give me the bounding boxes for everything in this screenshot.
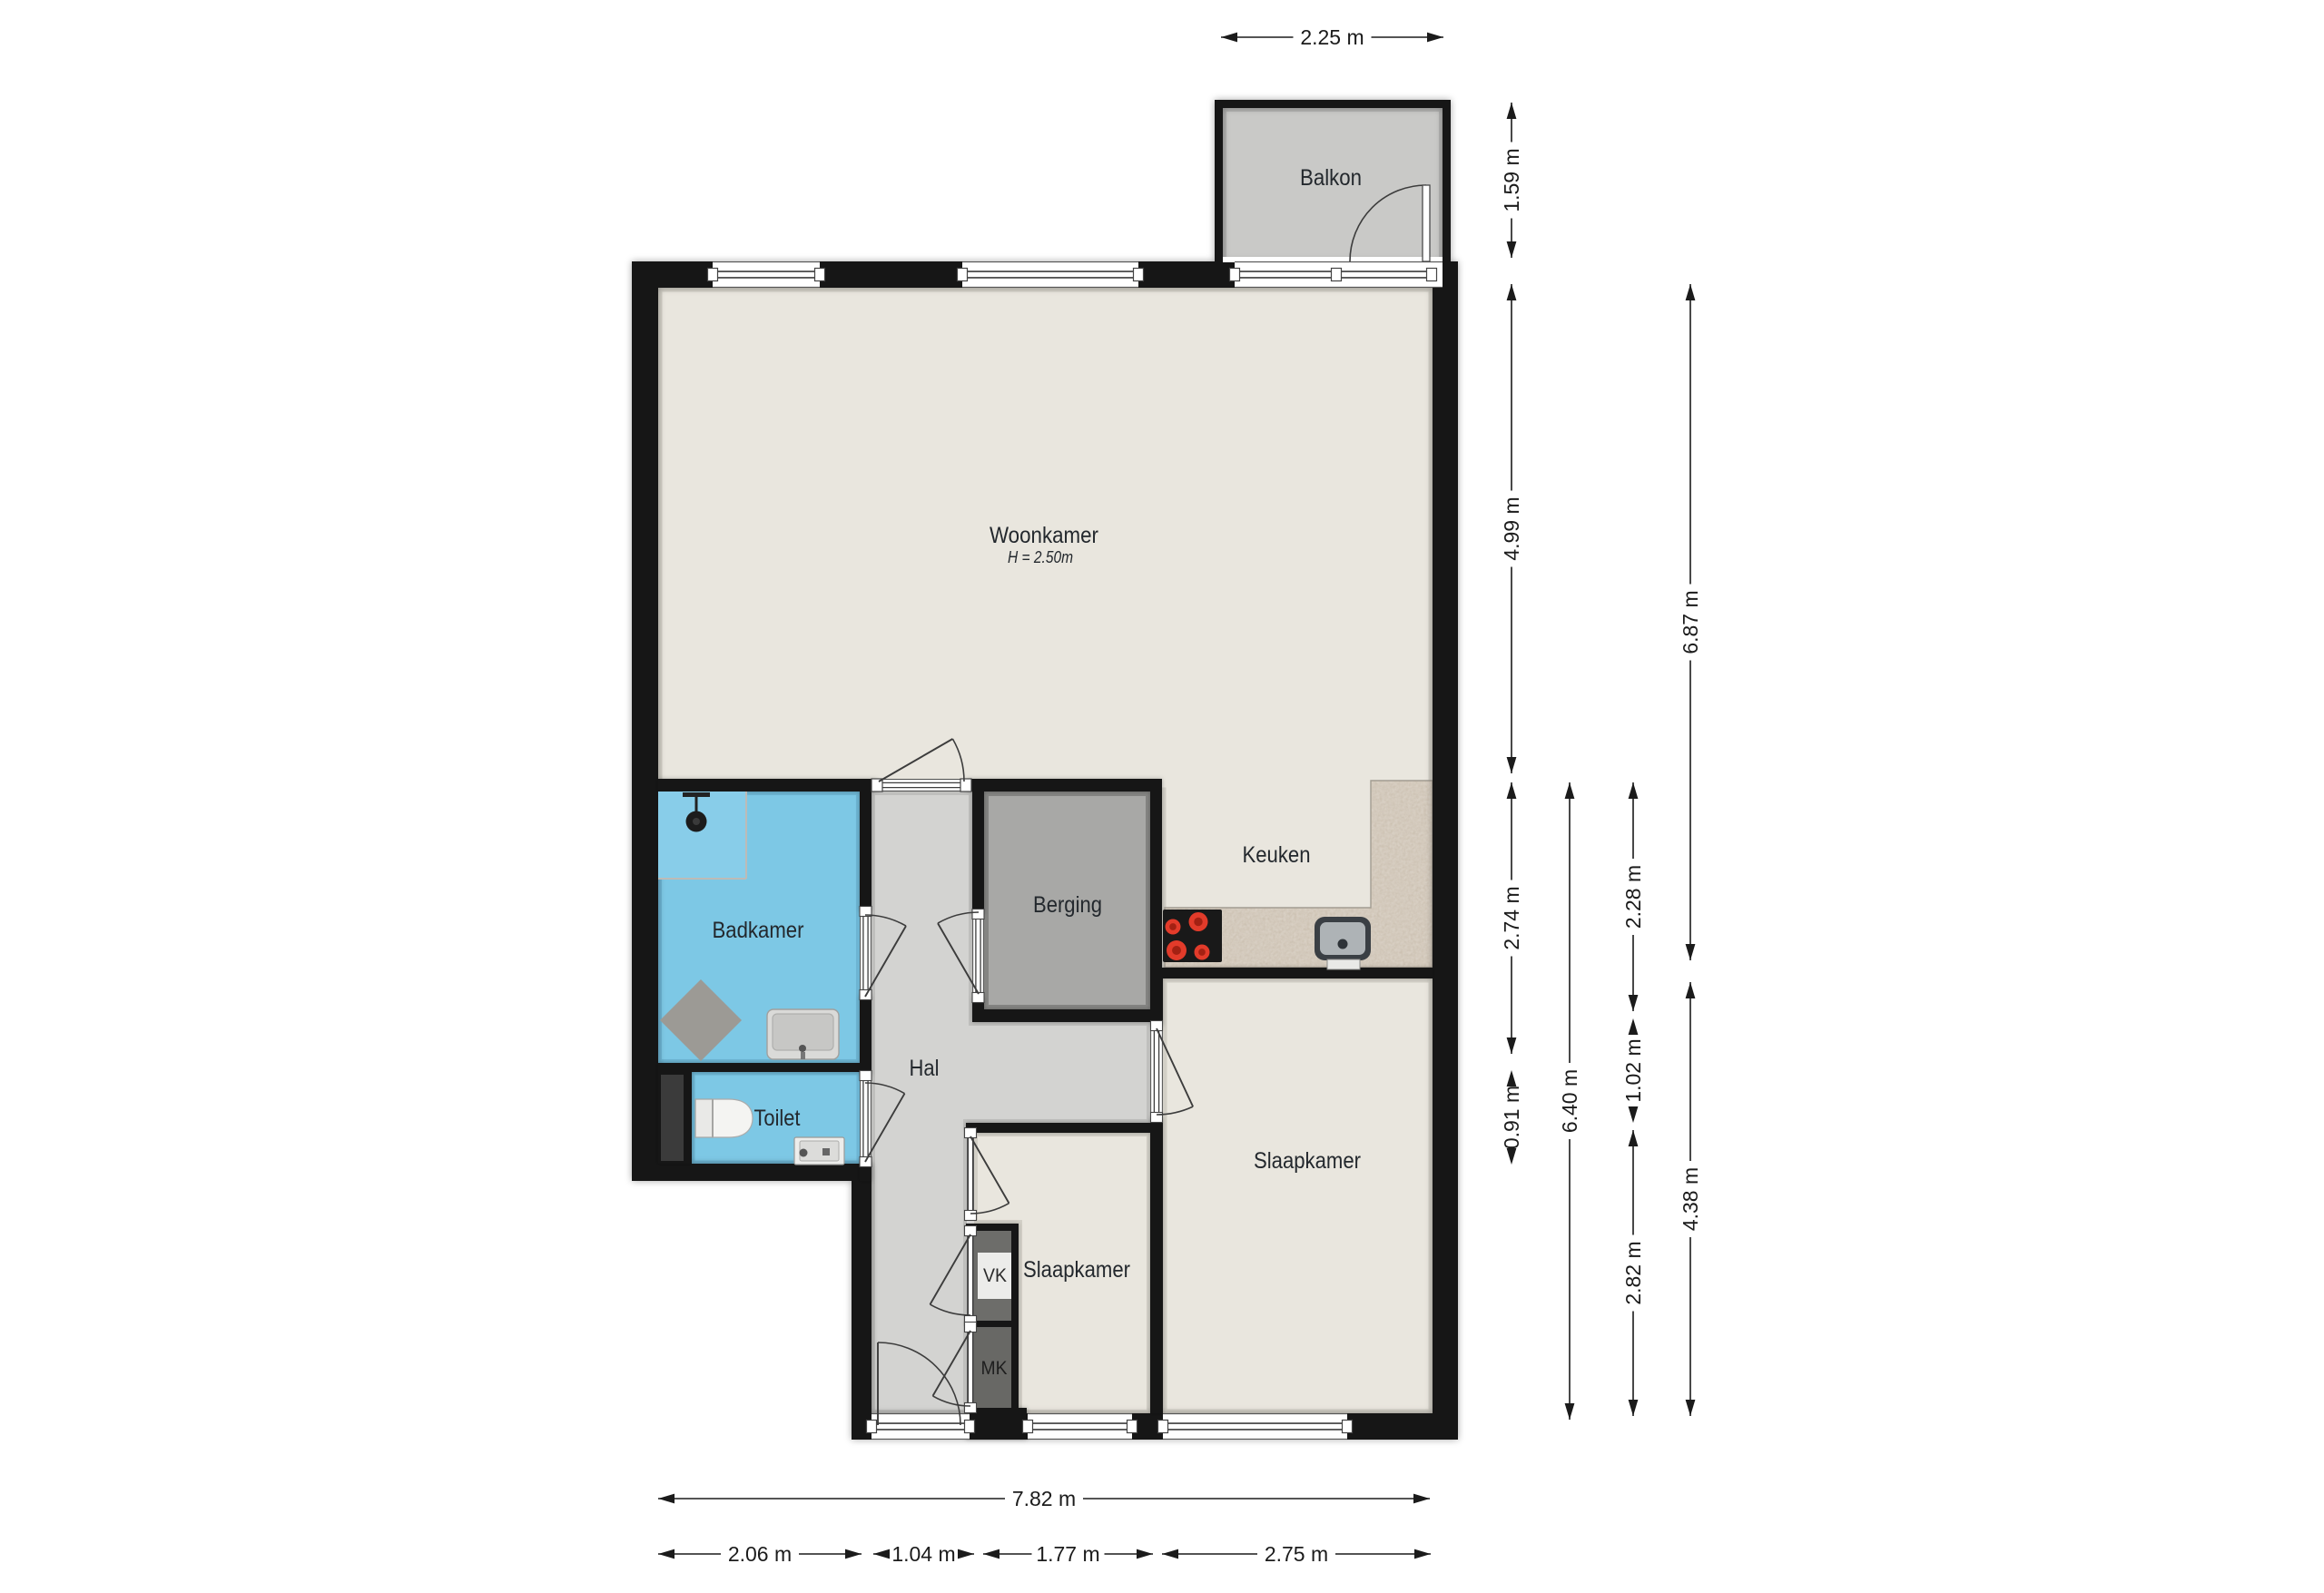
svg-text:2.74 m: 2.74 m: [1500, 886, 1523, 949]
svg-text:2.06 m: 2.06 m: [728, 1542, 792, 1566]
svg-text:2.82 m: 2.82 m: [1621, 1241, 1645, 1304]
svg-text:Woonkamer: Woonkamer: [990, 523, 1098, 548]
svg-text:Slaapkamer: Slaapkamer: [1023, 1257, 1130, 1283]
svg-text:0.91 m: 0.91 m: [1500, 1086, 1523, 1149]
svg-text:4.38 m: 4.38 m: [1679, 1167, 1702, 1231]
svg-text:VK: VK: [983, 1265, 1007, 1286]
svg-text:2.28 m: 2.28 m: [1621, 865, 1645, 929]
svg-text:2.75 m: 2.75 m: [1265, 1542, 1328, 1566]
svg-text:Hal: Hal: [910, 1056, 940, 1081]
svg-text:Slaapkamer: Slaapkamer: [1254, 1148, 1361, 1174]
svg-text:4.99 m: 4.99 m: [1500, 497, 1523, 560]
svg-text:1.02 m: 1.02 m: [1621, 1038, 1645, 1102]
svg-text:6.87 m: 6.87 m: [1679, 590, 1702, 654]
svg-text:7.82 m: 7.82 m: [1012, 1487, 1076, 1510]
svg-text:1.77 m: 1.77 m: [1036, 1542, 1099, 1566]
svg-text:Balkon: Balkon: [1300, 165, 1362, 191]
svg-text:Berging: Berging: [1033, 892, 1102, 918]
svg-text:1.04 m: 1.04 m: [891, 1542, 955, 1566]
svg-text:2.25 m: 2.25 m: [1300, 25, 1364, 49]
svg-text:6.40 m: 6.40 m: [1558, 1069, 1581, 1133]
svg-text:1.59 m: 1.59 m: [1500, 148, 1523, 211]
svg-text:H = 2.50m: H = 2.50m: [1008, 548, 1073, 566]
svg-text:Toilet: Toilet: [754, 1106, 801, 1131]
svg-text:Badkamer: Badkamer: [713, 918, 804, 943]
svg-text:Keuken: Keuken: [1243, 842, 1311, 868]
svg-text:MK: MK: [981, 1358, 1008, 1379]
